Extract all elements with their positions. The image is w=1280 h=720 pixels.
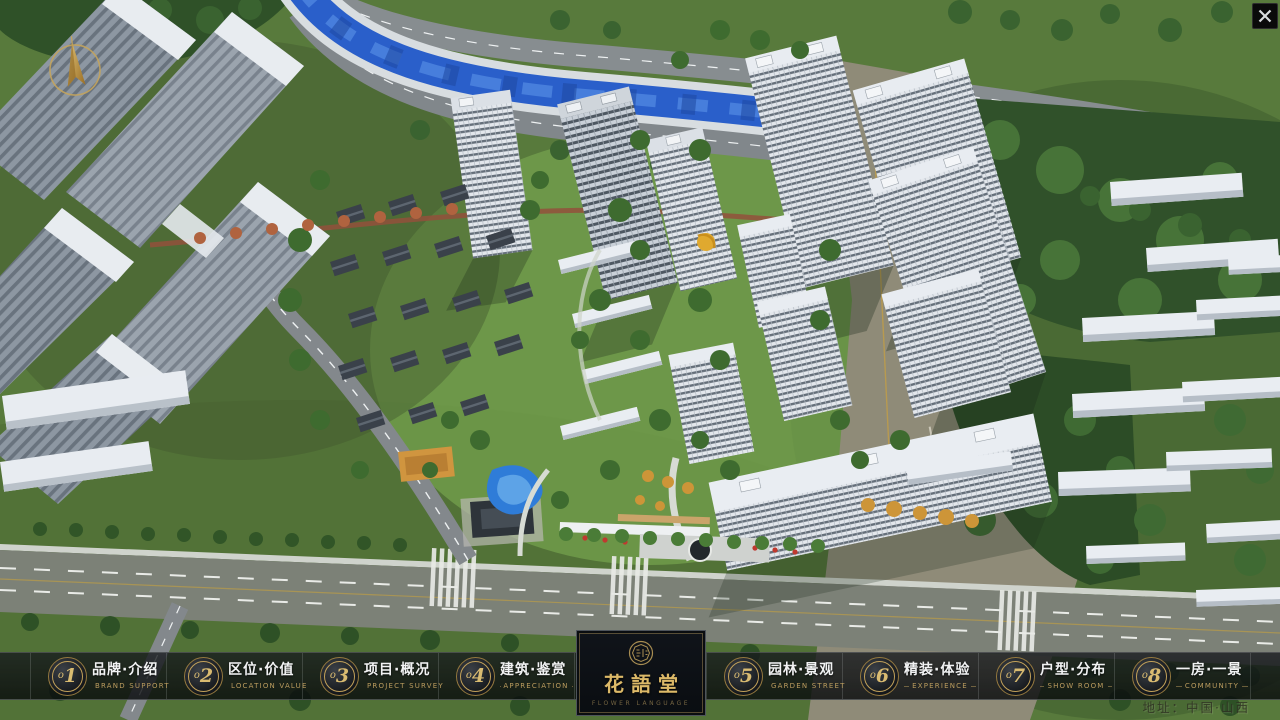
nav-sublabel: EXPERIENCE [904,682,976,690]
nav-sublabel: SHOW ROOM [1040,682,1112,690]
nav-number-badge: o6 [860,657,899,696]
nav-label: 建筑·鉴赏 [500,659,572,679]
nav-sublabel: BRAND SUPPORT [92,682,164,690]
nav-item-location-value[interactable]: o2 区位·价值 LOCATION VALUE [166,653,302,699]
presentation-window: o1 品牌·介绍 BRAND SUPPORT o2 区位·价值 LOCATION… [0,0,1280,720]
close-button[interactable] [1252,3,1278,29]
nav-label: 品牌·介绍 [92,659,164,679]
logo-panel[interactable]: 花語堂 FLOWER LANGUAGE [576,630,706,716]
nav-number-badge: o4 [456,657,495,696]
nav-number-badge: o1 [48,657,87,696]
nav-item-garden-landscape[interactable]: o5 园林·景观 GARDEN STREET [706,653,842,699]
nav-label: 区位·价值 [228,659,300,679]
nav-sublabel: GARDEN STREET [768,682,840,690]
nav-number-badge: o3 [320,657,359,696]
nav-item-brand-intro[interactable]: o1 品牌·介绍 BRAND SUPPORT [30,653,166,699]
nav-separator [1250,653,1251,699]
nav-item-project-survey[interactable]: o3 项目·概况 PROJECT SURVEY [302,653,438,699]
nav-sublabel: COMMUNITY [1176,682,1248,690]
nav-sublabel: APPRECIATION [500,682,572,690]
aerial-render [0,0,1280,720]
nav-label: 精装·体验 [904,659,976,679]
nav-label: 项目·概况 [364,659,436,679]
close-icon [1257,8,1273,24]
nav-sublabel: LOCATION VALUE [228,682,300,690]
project-address: 地址：中国·山西 [1143,697,1250,716]
brand-seal-icon [628,640,654,666]
nav-number-badge: o2 [184,657,223,696]
brand-title: 花語堂 [597,668,685,697]
nav-label: 一房·一景 [1176,659,1248,679]
brand-subtitle: FLOWER LANGUAGE [592,700,690,707]
nav-separator [574,653,575,699]
nav-number-badge: o5 [724,657,763,696]
nav-sublabel: PROJECT SURVEY [364,682,436,690]
map-viewport[interactable] [0,0,1280,720]
nav-item-finish-experience[interactable]: o6 精装·体验 EXPERIENCE [842,653,978,699]
nav-item-architecture[interactable]: o4 建筑·鉴赏 APPRECIATION [438,653,574,699]
nav-item-room-view[interactable]: o8 一房·一景 COMMUNITY [1114,653,1250,699]
nav-label: 园林·景观 [768,659,840,679]
nav-item-unit-distribution[interactable]: o7 户型·分布 SHOW ROOM [978,653,1114,699]
nav-label: 户型·分布 [1040,659,1112,679]
nav-number-badge: o8 [1132,657,1171,696]
nav-number-badge: o7 [996,657,1035,696]
